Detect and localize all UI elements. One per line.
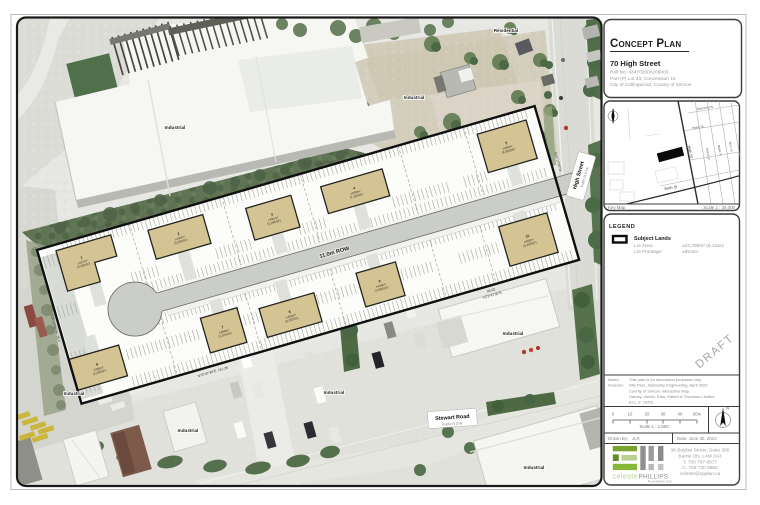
svg-text:(O.L.S. 1925): (O.L.S. 1925) (629, 399, 654, 404)
svg-text:Key Map: Key Map (608, 205, 626, 210)
svg-text:36 Bayliss Street, Suite 300: 36 Bayliss Street, Suite 300 (671, 448, 730, 454)
svg-text:Industrial: Industrial (503, 331, 524, 336)
svg-text:City of Collingwood, County of: City of Collingwood, County of Simcoe (610, 82, 692, 88)
svg-text:20: 20 (645, 411, 650, 416)
svg-text:±89.5m: ±89.5m (682, 249, 698, 255)
svg-text:celeste: celeste (613, 472, 639, 481)
svg-text:C. 705 730 9850: C. 705 730 9850 (682, 465, 718, 471)
svg-text:Subject Lands: Subject Lands (634, 236, 671, 242)
svg-text:Industrial: Industrial (165, 125, 186, 130)
svg-text:Notes:: Notes: (608, 377, 620, 382)
svg-text:30: 30 (661, 411, 666, 416)
svg-text:Sources:: Sources: (608, 383, 624, 388)
svg-text:This plan is for discussion pu: This plan is for discussion purposes onl… (629, 377, 702, 382)
svg-text:10: 10 (628, 411, 633, 416)
svg-text:Drawn By: JLR: Drawn By: JLR (608, 436, 640, 441)
svg-text:County of Simcoe Interactive M: County of Simcoe Interactive Map, (629, 388, 690, 393)
svg-text:Barrie ON, L4M 3A3: Barrie ON, L4M 3A3 (678, 453, 722, 459)
svg-text:Lot Frontage:: Lot Frontage: (634, 249, 663, 255)
svg-text:N: N (726, 406, 729, 411)
svg-text:Scale 1 : 1,500: Scale 1 : 1,500 (639, 424, 669, 429)
svg-text:Site Plan, Jablonsky Engineeri: Site Plan, Jablonsky Engineering, April … (629, 383, 708, 388)
svg-text:Lot Area:: Lot Area: (634, 243, 653, 249)
svg-text:70 High Street: 70 High Street (610, 59, 661, 68)
svg-text:Date: June 30, 2023: Date: June 30, 2023 (677, 436, 717, 441)
svg-text:Roll No. 434702000209000: Roll No. 434702000209000 (610, 70, 669, 76)
svg-text:Part (P) Lot 43, Concession 10: Part (P) Lot 43, Concession 10 (610, 76, 676, 82)
svg-text:celeste@cpplan.ca: celeste@cpplan.ca (680, 471, 721, 477)
svg-text:Industrial: Industrial (524, 465, 545, 470)
svg-text:Residential: Residential (494, 28, 519, 33)
svg-text:±24,780m² (6.12ac): ±24,780m² (6.12ac) (682, 243, 724, 249)
svg-text:Industrial: Industrial (324, 390, 345, 395)
svg-text:Industrial: Industrial (178, 428, 199, 433)
svg-text:Industrial: Industrial (404, 95, 425, 100)
svg-text:Concept Plan: Concept Plan (610, 38, 681, 50)
svg-text:Scale 1 : 25,000: Scale 1 : 25,000 (703, 205, 735, 210)
svg-text:40: 40 (678, 411, 683, 416)
svg-text:Industrial: Industrial (64, 391, 85, 396)
svg-text:50m: 50m (693, 411, 702, 416)
svg-text:PLANNING INC: PLANNING INC (648, 479, 672, 483)
svg-text:LEGEND: LEGEND (609, 224, 635, 230)
svg-text:T. 705 797 8977: T. 705 797 8977 (683, 459, 718, 465)
